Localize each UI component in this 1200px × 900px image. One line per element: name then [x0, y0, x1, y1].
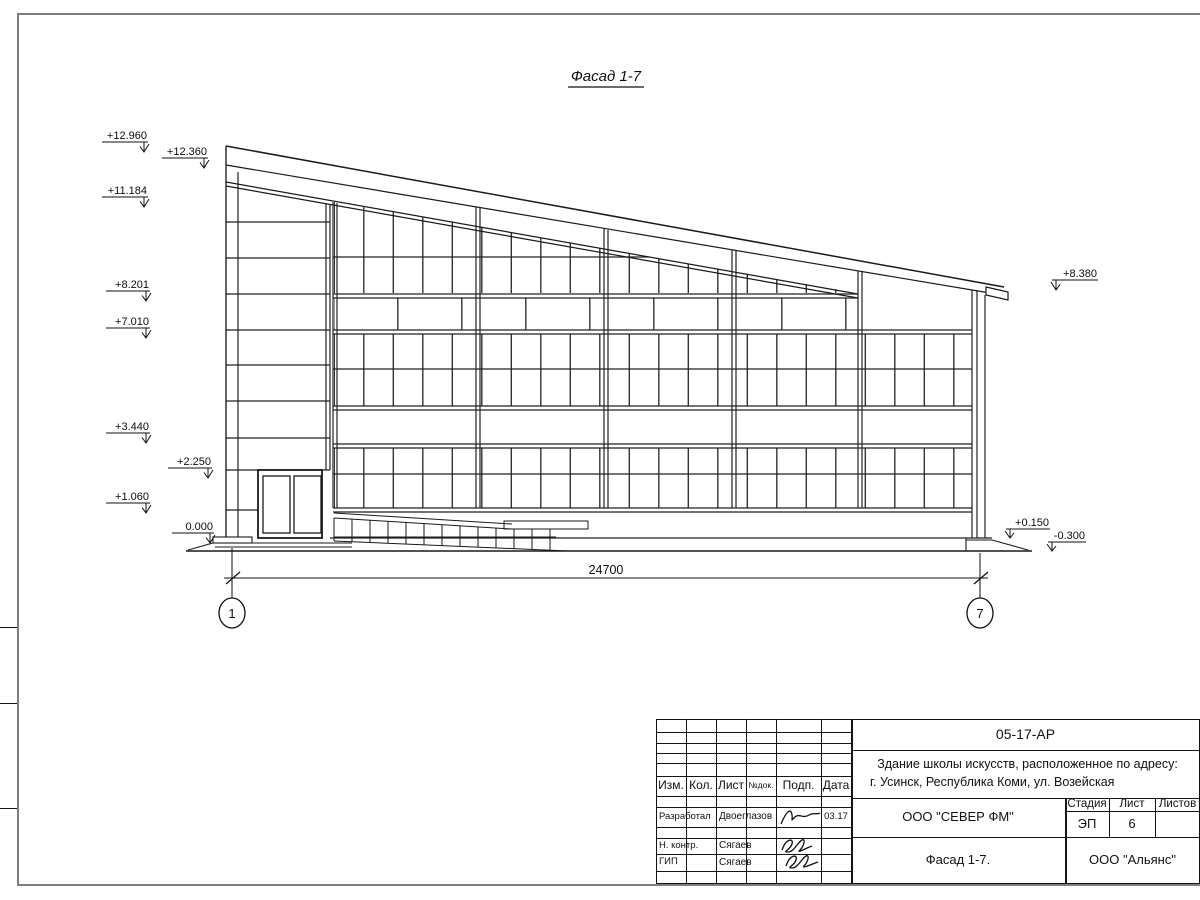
drawing-line	[1047, 542, 1056, 551]
elevation-label: 0.000	[185, 521, 213, 533]
sheet-number: 6	[1109, 811, 1155, 837]
elevation-label: +8.380	[1063, 268, 1097, 280]
drawing-line	[294, 476, 321, 533]
elevation-texts-left: +12.960 +12.360 +11.184 +8.201 +7.010 +3…	[107, 130, 213, 533]
dimension	[219, 548, 993, 628]
col-header-list: Лист	[716, 776, 746, 796]
drawing-line	[142, 503, 151, 513]
view-title: Фасад 1-7	[568, 68, 644, 87]
sheets-label: Листов	[1155, 798, 1200, 811]
elevation-label: +11.184	[108, 185, 147, 197]
drawing-line	[781, 811, 820, 824]
drawing-line	[213, 537, 252, 543]
drawing-line	[786, 856, 818, 868]
elevation-label: -0.300	[1054, 530, 1085, 542]
drawing-line	[334, 541, 568, 551]
drawing-line	[140, 197, 149, 207]
company-name: ООО "СЕВЕР ФМ"	[851, 798, 1065, 837]
drawing-line	[142, 433, 151, 443]
drawing-line	[656, 796, 851, 797]
elevation-label: +1.060	[115, 491, 149, 503]
drawing-line	[334, 518, 512, 529]
signature-razrabotal	[779, 806, 821, 828]
drawing-line	[334, 513, 512, 524]
axis-label-1: 1	[228, 606, 235, 621]
drawing-line	[334, 334, 972, 406]
stage-value: ЭП	[1065, 811, 1109, 837]
col-header-data: Дата	[821, 776, 851, 796]
elevation-label: +2.250	[177, 456, 211, 468]
glazing-panes	[334, 202, 972, 508]
elevation-texts-right: +8.380 +0.150 -0.300	[1015, 268, 1097, 542]
sheet-title: Фасад 1-7.	[851, 837, 1065, 884]
view-title-text: Фасад 1-7	[571, 68, 642, 85]
stage-label: Стадия	[1065, 798, 1109, 811]
row-date: 03.17	[821, 807, 851, 827]
elevation-markers-left	[102, 142, 215, 543]
drawing-line	[1005, 529, 1014, 538]
drawing-line	[263, 476, 290, 533]
col-header-izm: Изм.	[656, 776, 686, 796]
drawing-line	[206, 533, 215, 543]
drawing-line	[1051, 280, 1060, 290]
col-header-podp: Подп.	[776, 776, 821, 796]
row-name: Сягаев	[719, 838, 775, 854]
roof-overhang-tip	[986, 287, 1008, 300]
elevation-markers-right	[1005, 280, 1098, 551]
drawing-line	[140, 142, 149, 152]
project-desc-line2: г. Усинск, Республика Коми, ул. Возейска…	[860, 773, 1200, 791]
dimension-value: 24700	[589, 563, 624, 577]
drawing-line	[656, 732, 851, 733]
row-name: Сягаев	[719, 854, 775, 871]
contractor-name: ООО "Альянс"	[1065, 837, 1200, 884]
elevation-label: +0.150	[1015, 517, 1049, 529]
entrance-door	[258, 470, 322, 538]
project-desc-line1: Здание школы искусств, расположенное по …	[860, 755, 1195, 773]
signature-nkontr	[778, 836, 822, 872]
row-name: Двоеглазов	[719, 807, 775, 827]
drawing-line	[992, 540, 1028, 550]
elevation-label: +3.440	[115, 421, 149, 433]
col-header-ndok: №док.	[746, 776, 776, 796]
drawing-line	[656, 743, 851, 744]
drawing-line	[782, 840, 812, 852]
doc-number: 05-17-АР	[851, 719, 1200, 750]
drawing-sheet: Фасад 1-7	[0, 0, 1200, 900]
drawing-line	[142, 328, 151, 338]
drawing-line	[334, 298, 858, 330]
sheets-total	[1155, 811, 1200, 837]
base-and-ground	[186, 537, 1032, 551]
col-header-kol: Кол.	[686, 776, 716, 796]
elevation-label: +12.360	[167, 146, 207, 158]
ramp-railing	[334, 513, 588, 551]
drawing-line	[204, 468, 213, 478]
elevation-label: +8.201	[115, 279, 149, 291]
row-role: Н. контр.	[659, 838, 715, 854]
drawing-line	[142, 291, 151, 301]
axis-label-7: 7	[976, 606, 983, 621]
drawing-line	[334, 448, 972, 508]
drawing-line	[656, 827, 851, 828]
elevation-label: +7.010	[115, 316, 149, 328]
sheet-label: Лист	[1109, 798, 1155, 811]
elevation-label: +12.960	[107, 130, 147, 142]
drawing-line	[656, 753, 851, 754]
drawing-line	[200, 158, 209, 168]
drawing-line	[656, 763, 851, 764]
drawing-line	[188, 543, 213, 550]
row-role: Разработал	[659, 807, 715, 827]
drawing-line	[504, 521, 588, 529]
row-role: ГИП	[659, 854, 715, 871]
drawing-line	[851, 750, 1200, 751]
